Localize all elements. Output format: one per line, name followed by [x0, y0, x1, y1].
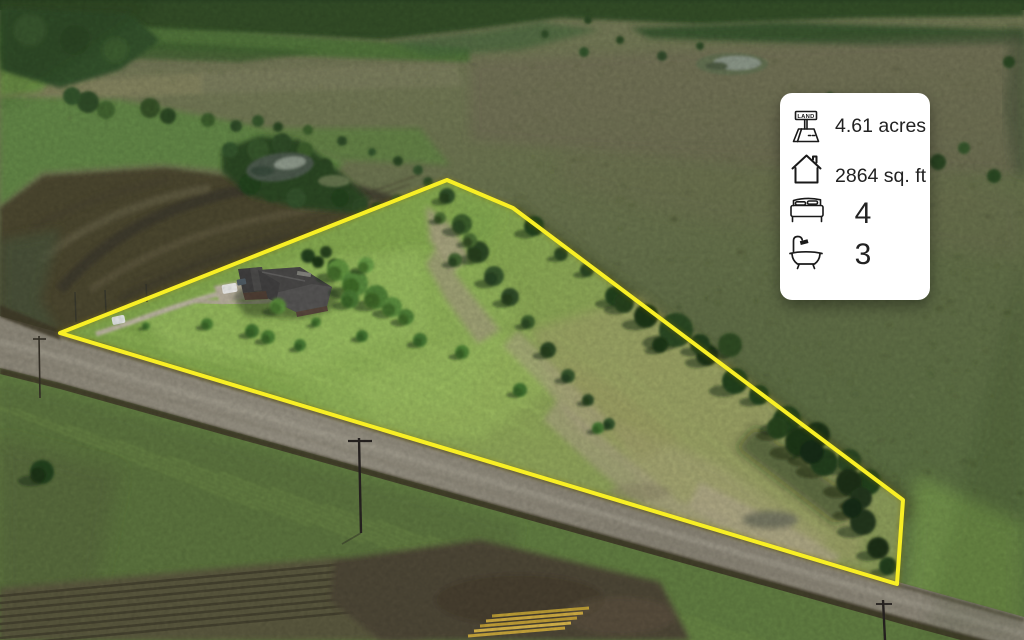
svg-text:LAND: LAND	[797, 114, 814, 120]
